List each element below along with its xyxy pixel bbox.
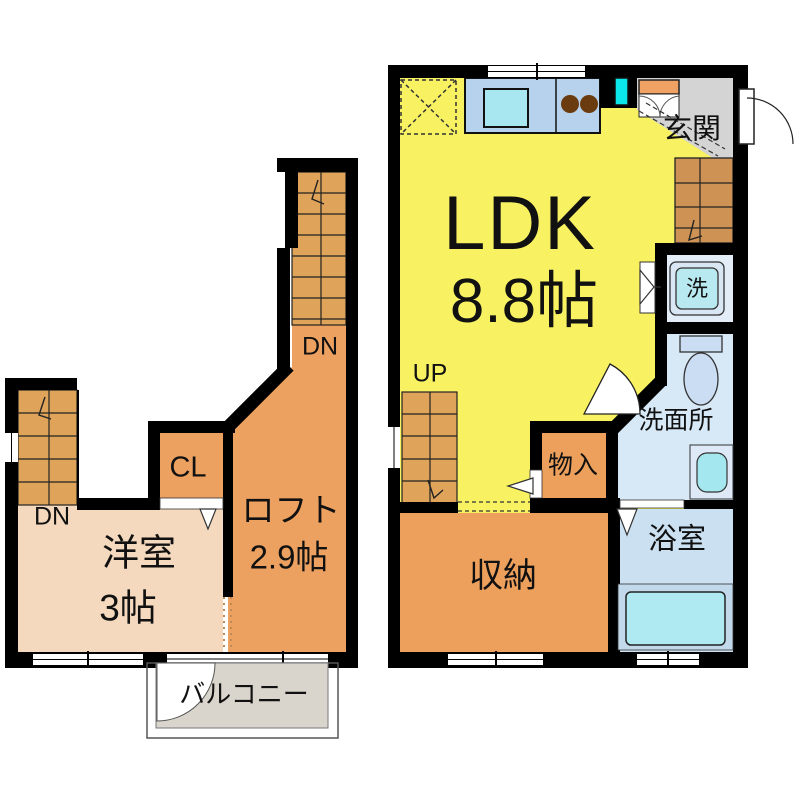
storage-label: 収納 [469, 559, 537, 593]
up-label: UP [413, 362, 448, 387]
western-room-label: 洋室 [102, 535, 176, 572]
dn-lower-label: DN [34, 505, 70, 530]
washroom-label: 洗面所 [638, 409, 713, 434]
washer-label: 洗 [686, 278, 708, 300]
entry-stairs [675, 158, 733, 243]
upper-stairs [292, 172, 346, 325]
entrance-label: 玄関 [663, 116, 721, 145]
tall-window [615, 78, 628, 105]
monoire-label: 物入 [548, 454, 598, 479]
western-room-area-label: 3帖 [99, 590, 157, 627]
lower-stairs [18, 390, 77, 505]
loft-label: ロフト [242, 494, 341, 527]
toilet-tank [680, 336, 722, 352]
entrance-door [739, 89, 754, 144]
dn-upper-label: DN [302, 335, 338, 360]
floorplan-canvas: LDK 8.8帖 玄関 洗 洗面所 浴室 物入 収納 UP DN DN CL ロ… [0, 0, 800, 800]
balcony-label: バルコニー [179, 681, 308, 707]
bathroom-door [620, 500, 684, 508]
bathroom-label: 浴室 [648, 526, 706, 555]
toilet-bowl [684, 353, 718, 405]
ldk-label: LDK [443, 186, 597, 262]
ldk-area-label: 8.8帖 [450, 271, 598, 333]
cl-label: CL [169, 454, 206, 483]
kitchen-sink [484, 89, 528, 127]
vanity-sink [697, 453, 727, 492]
loft-area-label: 2.9帖 [250, 541, 329, 574]
stove-burner [561, 95, 579, 113]
stove-burner [580, 95, 598, 113]
shoe-cabinet [639, 80, 679, 94]
bathtub [626, 592, 725, 645]
cl-door [160, 498, 223, 509]
